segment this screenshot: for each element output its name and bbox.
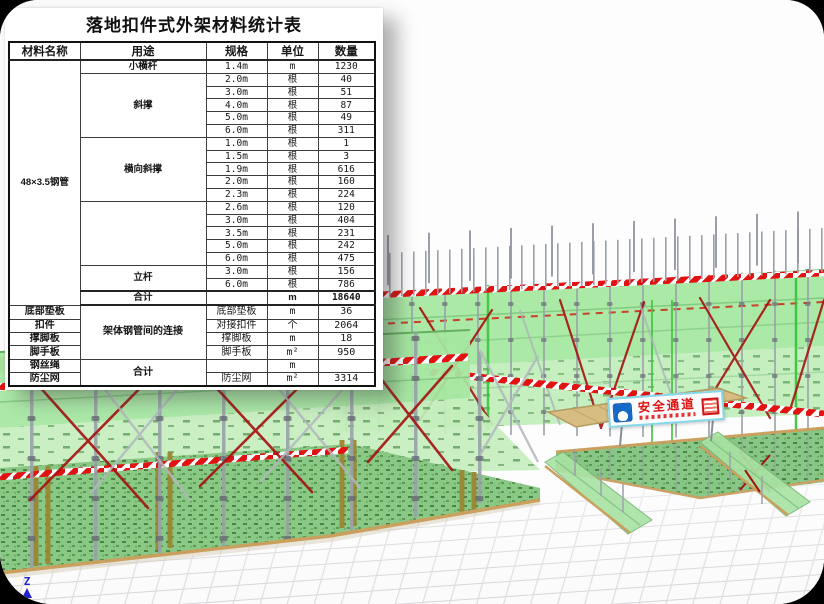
qty-cell: 18 [318, 332, 375, 345]
unit-cell: m² [267, 346, 318, 359]
unit-cell: m [267, 291, 318, 305]
spec-cell: 6.0m [206, 252, 267, 265]
qty-cell: 87 [318, 99, 375, 112]
unit-cell: 根 [267, 99, 318, 112]
z-axis-label: Z [24, 575, 31, 588]
unit-cell: 根 [267, 240, 318, 253]
unit-cell: 根 [267, 163, 318, 176]
unit-cell: m [267, 60, 318, 73]
spec-cell: 撑脚板 [206, 332, 267, 345]
material-name-cell: 底部垫板 [9, 305, 80, 319]
unit-cell: 根 [267, 112, 318, 125]
qty-cell: 311 [318, 124, 375, 137]
stats-table: 材料名称 用途 规格 单位 数量 48×3.5钢管小横杆1.4mm1230 斜撑… [8, 41, 376, 387]
banner-logo-left-icon [612, 402, 632, 422]
qty-cell: 3 [318, 150, 375, 163]
qty-cell: 36 [318, 305, 375, 319]
spec-cell: 对接扣件 [206, 319, 267, 332]
unit-cell: m [267, 359, 318, 372]
spec-cell: 5.0m [206, 112, 267, 125]
col-header-unit: 单位 [267, 42, 318, 60]
usage-cell: 斜撑 [80, 73, 206, 137]
spec-cell: 5.0m [206, 240, 267, 253]
col-header-spec: 规格 [206, 42, 267, 60]
spec-cell: 1.5m [206, 150, 267, 163]
material-name-cell: 防尘网 [9, 373, 80, 387]
table-row: 底部垫板架体钢管间的连接底部垫板m36 [9, 305, 375, 319]
usage-cell [80, 201, 206, 265]
material-name-cell: 脚手板 [9, 346, 80, 359]
z-axis-indicator: Z [22, 575, 32, 598]
unit-cell: 根 [267, 150, 318, 163]
spec-cell: 脚手板 [206, 346, 267, 359]
spec-cell [206, 359, 267, 372]
spec-cell: 3.0m [206, 214, 267, 227]
usage-cell: 立杆 [80, 265, 206, 291]
col-header-usage: 用途 [80, 42, 206, 60]
spec-cell: 6.0m [206, 124, 267, 137]
unit-cell: 个 [267, 319, 318, 332]
spec-cell: 底部垫板 [206, 305, 267, 319]
unit-cell: 根 [267, 188, 318, 201]
table-row: 48×3.5钢管小横杆1.4mm1230 [9, 60, 375, 73]
unit-cell: 根 [267, 252, 318, 265]
header-row: 材料名称 用途 规格 单位 数量 [9, 42, 375, 60]
usage-cell: 架体钢管间的连接 [80, 305, 206, 359]
qty-cell: 242 [318, 240, 375, 253]
qty-cell: 1230 [318, 60, 375, 73]
unit-cell: m [267, 305, 318, 319]
spec-cell: 2.6m [206, 201, 267, 214]
spec-cell [206, 291, 267, 305]
material-name-cell: 48×3.5钢管 [9, 60, 80, 305]
unit-cell: 根 [267, 227, 318, 240]
usage-cell: 合计 [80, 291, 206, 305]
unit-cell: 根 [267, 265, 318, 278]
qty-cell: 224 [318, 188, 375, 201]
qty-cell: 950 [318, 346, 375, 359]
qty-cell [318, 359, 375, 372]
qty-cell: 49 [318, 112, 375, 125]
qty-cell: 160 [318, 176, 375, 189]
material-stats-table: 落地扣件式外架材料统计表 材料名称 用途 规格 单位 数量 48×3.5钢管小横… [5, 8, 383, 390]
material-name-cell: 扣件 [9, 319, 80, 332]
unit-cell: 根 [267, 124, 318, 137]
unit-cell: 根 [267, 137, 318, 150]
unit-cell: 根 [267, 214, 318, 227]
spec-cell: 防尘网 [206, 373, 267, 387]
unit-cell: m [267, 332, 318, 345]
qty-cell: 18640 [318, 291, 375, 305]
col-header-qty: 数量 [318, 42, 375, 60]
qty-cell: 120 [318, 201, 375, 214]
spec-cell: 3.5m [206, 227, 267, 240]
unit-cell: 根 [267, 278, 318, 291]
qty-cell: 404 [318, 214, 375, 227]
spec-cell: 1.0m [206, 137, 267, 150]
usage-cell: 合计 [80, 359, 206, 386]
usage-cell: 小横杆 [80, 60, 206, 73]
qty-cell: 475 [318, 252, 375, 265]
unit-cell: 根 [267, 176, 318, 189]
material-name-cell: 撑脚板 [9, 332, 80, 345]
qty-cell: 3314 [318, 373, 375, 387]
qty-cell: 51 [318, 86, 375, 99]
spec-cell: 6.0m [206, 278, 267, 291]
unit-cell: 根 [267, 86, 318, 99]
qty-cell: 156 [318, 265, 375, 278]
usage-cell: 横向斜撑 [80, 137, 206, 201]
material-name-cell: 钢丝绳 [9, 359, 80, 372]
spec-cell: 3.0m [206, 265, 267, 278]
qty-cell: 616 [318, 163, 375, 176]
table-title: 落地扣件式外架材料统计表 [8, 8, 380, 41]
spec-cell: 4.0m [206, 99, 267, 112]
unit-cell: 根 [267, 73, 318, 86]
spec-cell: 3.0m [206, 86, 267, 99]
col-header-material: 材料名称 [9, 42, 80, 60]
qty-cell: 2064 [318, 319, 375, 332]
qty-cell: 231 [318, 227, 375, 240]
banner-logo-right-icon [701, 397, 719, 415]
spec-cell: 1.9m [206, 163, 267, 176]
unit-cell: 根 [267, 201, 318, 214]
qty-cell: 1 [318, 137, 375, 150]
spec-cell: 2.3m [206, 188, 267, 201]
z-axis-arrow-icon [22, 588, 32, 598]
viewport: 安全通道 Z 落地扣件式外架材料统计表 材料名称 用途 规格 单位 数量 48×… [0, 0, 824, 604]
table-row: 钢丝绳合计m [9, 359, 375, 372]
spec-cell: 2.0m [206, 73, 267, 86]
spec-cell: 1.4m [206, 60, 267, 73]
unit-cell: m² [267, 373, 318, 387]
qty-cell: 40 [318, 73, 375, 86]
spec-cell: 2.0m [206, 176, 267, 189]
qty-cell: 786 [318, 278, 375, 291]
